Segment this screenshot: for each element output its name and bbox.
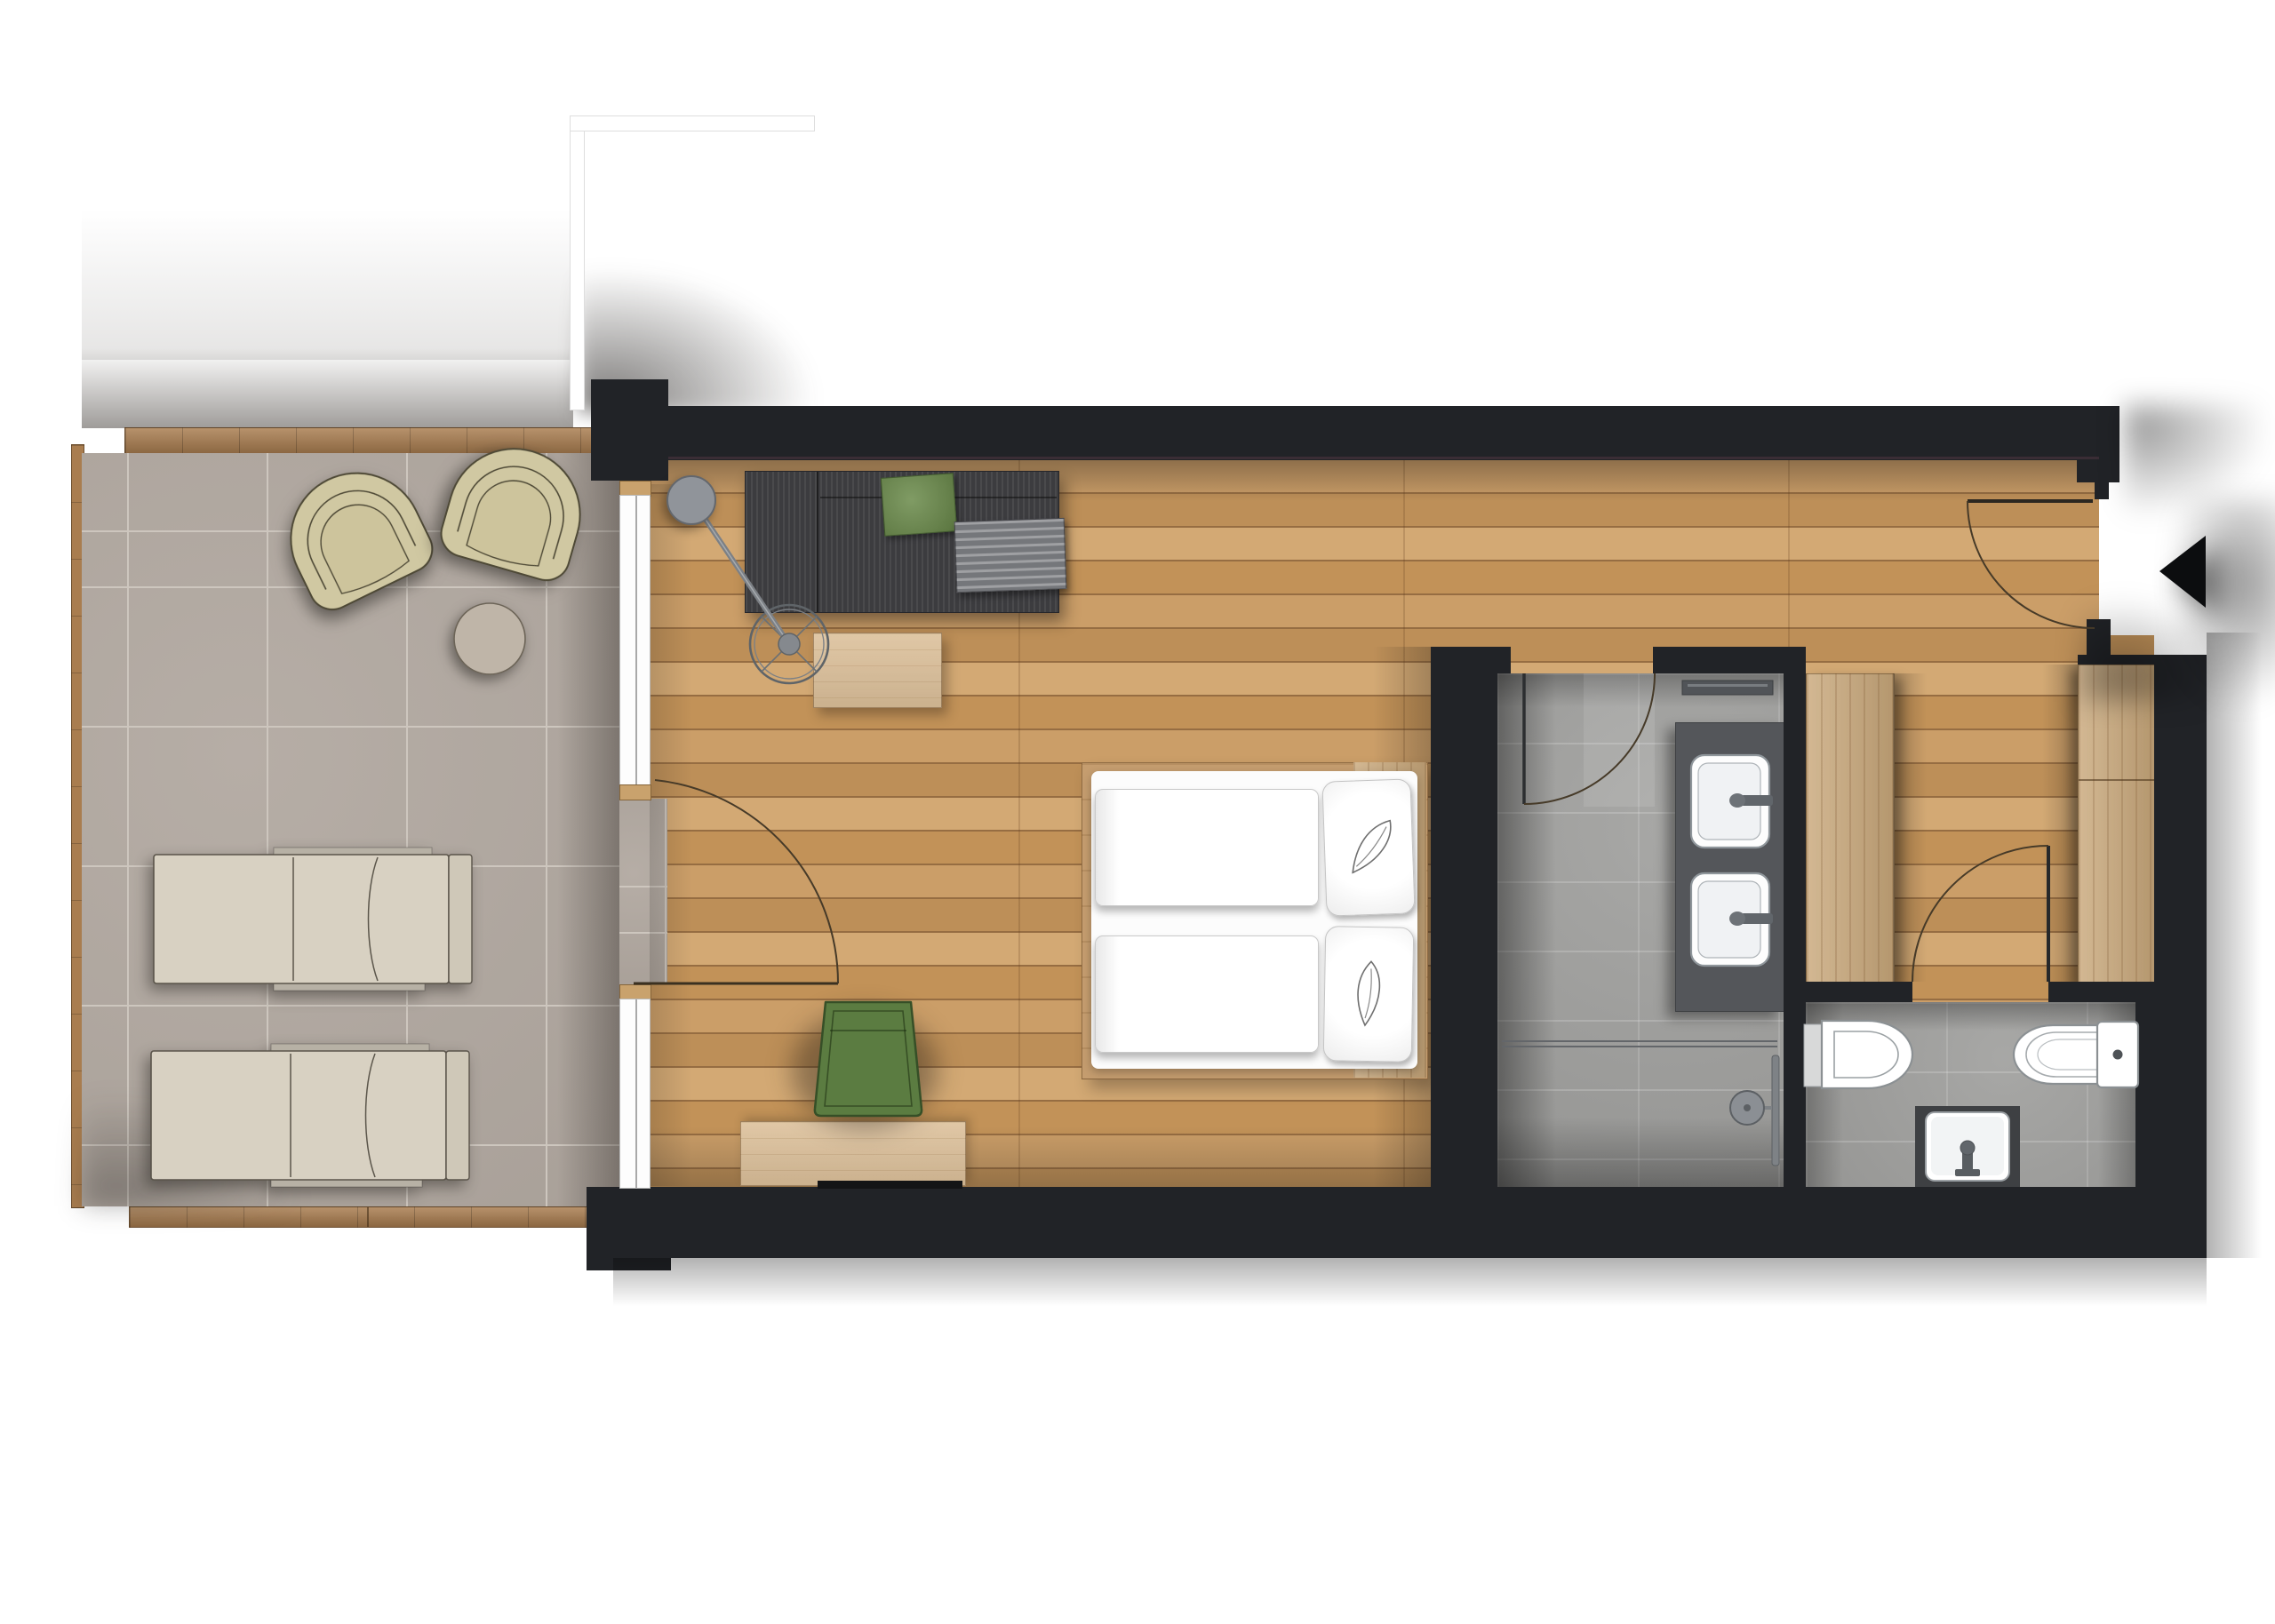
bathroom-door <box>1524 673 1655 804</box>
wc-door <box>1912 846 2048 982</box>
patio-door <box>634 780 838 983</box>
floor-lamp <box>667 476 828 683</box>
shower-glass-screen <box>1502 1041 1777 1047</box>
bathroom-sink-bottom <box>1691 873 1773 966</box>
pillow-leaf-decor-bottom <box>1353 960 1384 1027</box>
side-table <box>454 603 525 674</box>
outdoor-armchair-right <box>435 434 595 586</box>
bathroom-wall-rail <box>1682 681 1773 695</box>
floor-plan-canvas <box>0 0 2275 1624</box>
bathroom-sink-top <box>1691 755 1773 848</box>
fixtures-overlay <box>0 0 2275 1624</box>
sideboard-recess <box>818 1181 962 1189</box>
green-armchair <box>792 1002 938 1128</box>
sun-lounger-bottom <box>151 1044 469 1187</box>
sun-lounger-top <box>154 848 472 991</box>
entrance-door <box>1968 501 2095 628</box>
shower-column <box>1730 1055 1779 1166</box>
hand-basin <box>1915 1106 2020 1187</box>
outdoor-armchair-left <box>268 451 440 617</box>
toilet-cistern <box>2014 1022 2138 1087</box>
entrance-arrow-icon <box>2159 536 2206 608</box>
toilet-wall-hung <box>1804 1021 1912 1088</box>
pillow-leaf-decor-top <box>1344 815 1400 878</box>
